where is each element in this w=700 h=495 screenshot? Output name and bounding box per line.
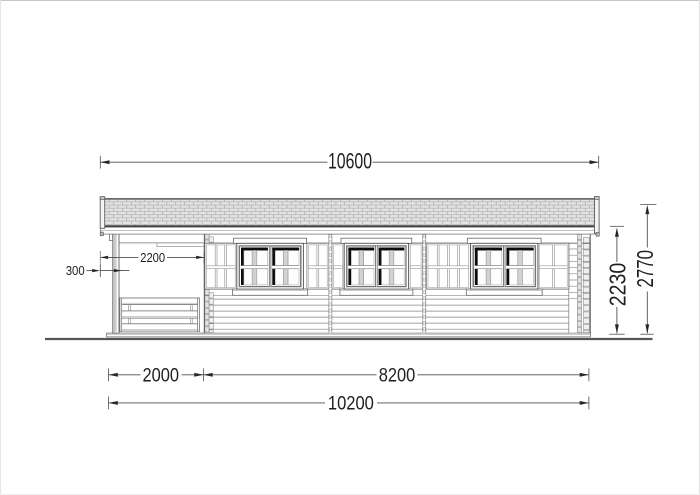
svg-text:10600: 10600 xyxy=(328,148,372,173)
svg-text:8200: 8200 xyxy=(379,364,416,386)
svg-text:10200: 10200 xyxy=(328,392,374,414)
svg-text:2770: 2770 xyxy=(632,250,658,288)
svg-text:2200: 2200 xyxy=(140,251,165,265)
svg-text:300: 300 xyxy=(66,264,85,278)
svg-text:2000: 2000 xyxy=(143,364,180,386)
svg-text:2230: 2230 xyxy=(604,263,630,307)
